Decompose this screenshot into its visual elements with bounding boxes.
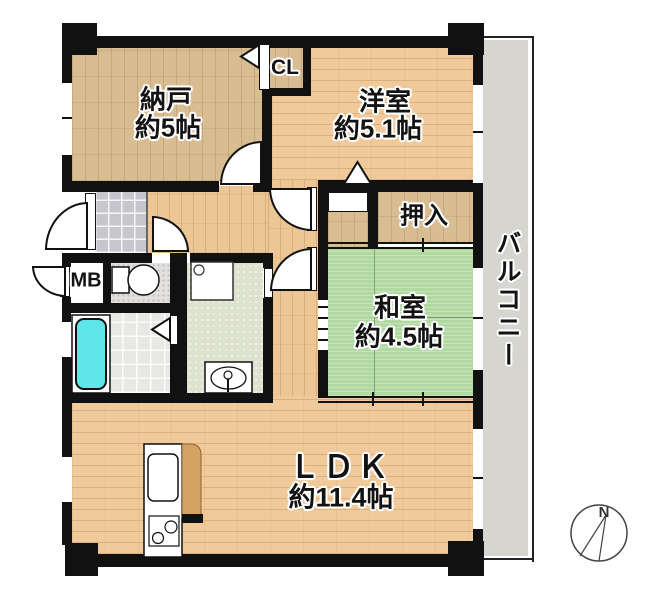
compass-north-label: N [599,504,610,521]
bath-door-triangle [152,318,170,341]
label-balcony: バルコニー [489,230,525,370]
bathtub-icon [76,319,106,389]
kitchen-sink-icon [148,454,178,501]
toilet-tank-icon [112,267,129,293]
label-washitsu-size: 約4.5帖 [355,317,443,354]
kitchen-wall-stub [182,514,203,523]
cl-door-triangle [241,45,259,68]
vanity-faucet-icon [224,371,232,379]
washer-drain-icon [194,265,204,275]
toilet-bowl-icon [128,265,159,295]
label-mb: MB [70,270,101,293]
label-nando-size: 約5帖 [135,108,201,145]
burner-icon-2 [153,533,164,544]
floor-plan: N 納戸 約5帖 CL 洋室 約5.1帖 押入 和室 約4.5帖 ＬＤＫ 約11… [0,0,666,600]
label-cl: CL [271,56,299,80]
label-oshiire: 押入 [400,196,448,231]
yoshitsu-door-triangle [344,162,371,184]
kitchen-bar-counter [182,444,201,517]
label-ldk-size: 約11.4帖 [288,476,393,515]
burner-icon-1 [165,521,177,533]
label-yoshitsu-size: 約5.1帖 [334,109,422,146]
